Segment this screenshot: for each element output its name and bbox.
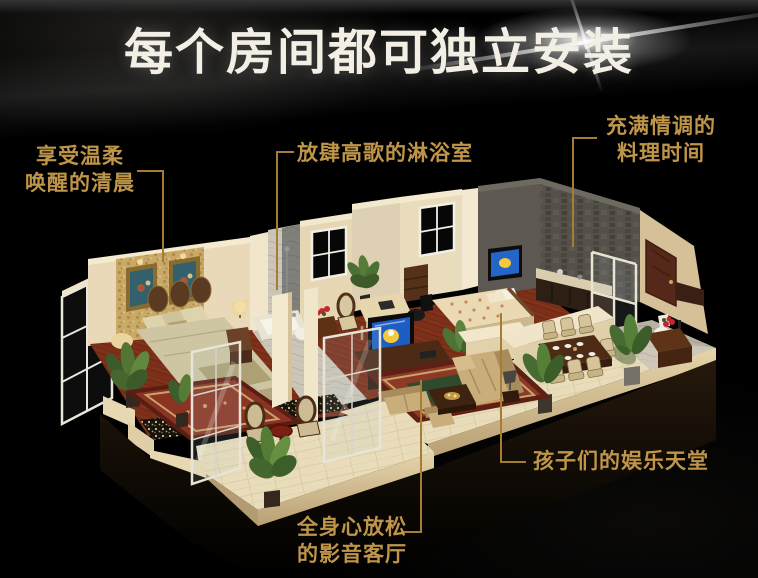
- glass-wall-right: [324, 328, 380, 462]
- shower-head: [285, 247, 290, 252]
- bottle: [678, 320, 681, 328]
- glass-wall-left: [192, 342, 240, 484]
- annotation-kids: 孩子们的娱乐天堂: [533, 448, 709, 475]
- wall-sconce: [137, 259, 143, 265]
- apartment-render: [0, 0, 758, 578]
- annotation-shower-line1: 放肆高歌的淋浴室: [297, 141, 473, 165]
- poster: 每个房间都可独立安装: [0, 0, 758, 578]
- door-knob: [669, 280, 673, 284]
- stove-pot: [578, 275, 583, 280]
- wall-sconce: [180, 253, 186, 259]
- kids-wall-tv: [488, 245, 522, 281]
- annotation-bedroom-line2: 唤醒的清晨: [25, 171, 135, 195]
- annotation-kids-line1: 孩子们的娱乐天堂: [533, 449, 709, 473]
- annotation-kitchen-line1: 充满情调的: [606, 114, 716, 138]
- right-wall: [640, 210, 708, 334]
- annotation-shower: 放肆高歌的淋浴室: [297, 140, 473, 167]
- annotation-bedroom-line1: 享受温柔: [36, 144, 124, 168]
- annotation-bedroom: 享受温柔 唤醒的清晨: [10, 143, 150, 197]
- annotation-living-line1: 全身心放松: [297, 515, 407, 539]
- wall-pillar: [462, 188, 478, 290]
- centerpiece: [573, 347, 577, 351]
- annotation-kitchen: 充满情调的 料理时间: [594, 113, 728, 167]
- kettle: [557, 269, 563, 275]
- annotation-living: 全身心放松 的影音客厅: [297, 514, 407, 568]
- annotation-living-line2: 的影音客厅: [297, 542, 407, 566]
- annotation-kitchen-line2: 料理时间: [617, 141, 705, 165]
